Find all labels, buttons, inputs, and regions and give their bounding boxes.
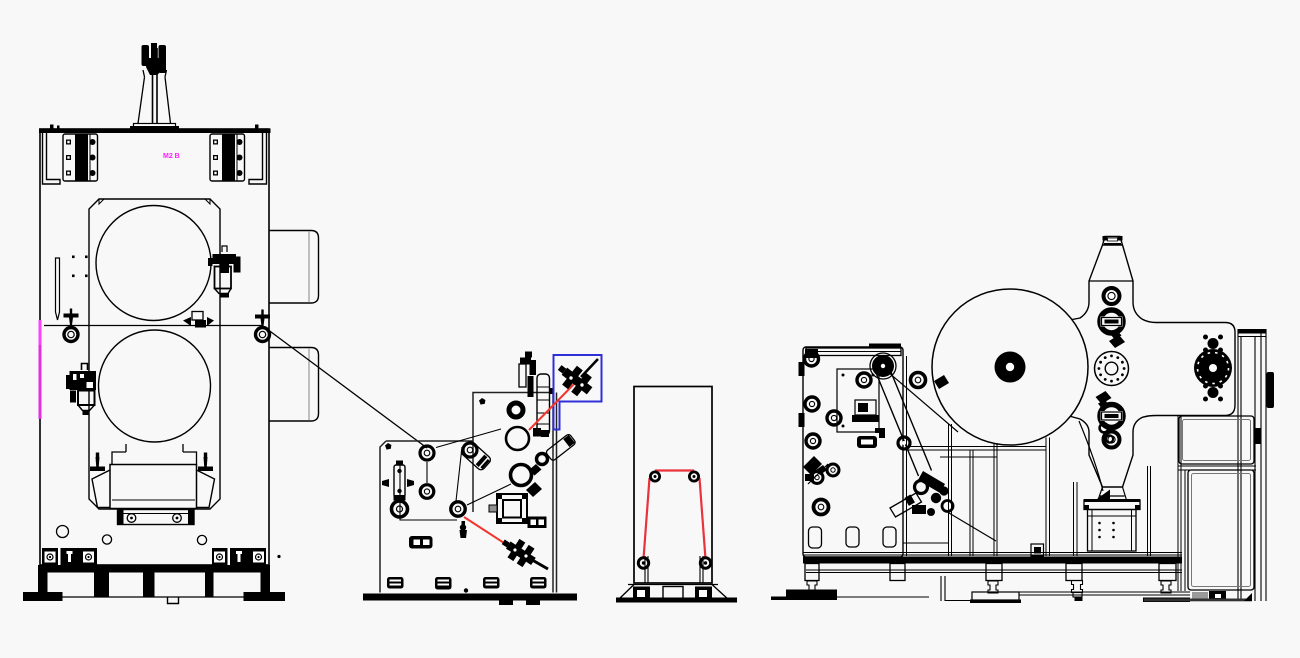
svg-text:M2 B: M2 B	[163, 153, 180, 160]
